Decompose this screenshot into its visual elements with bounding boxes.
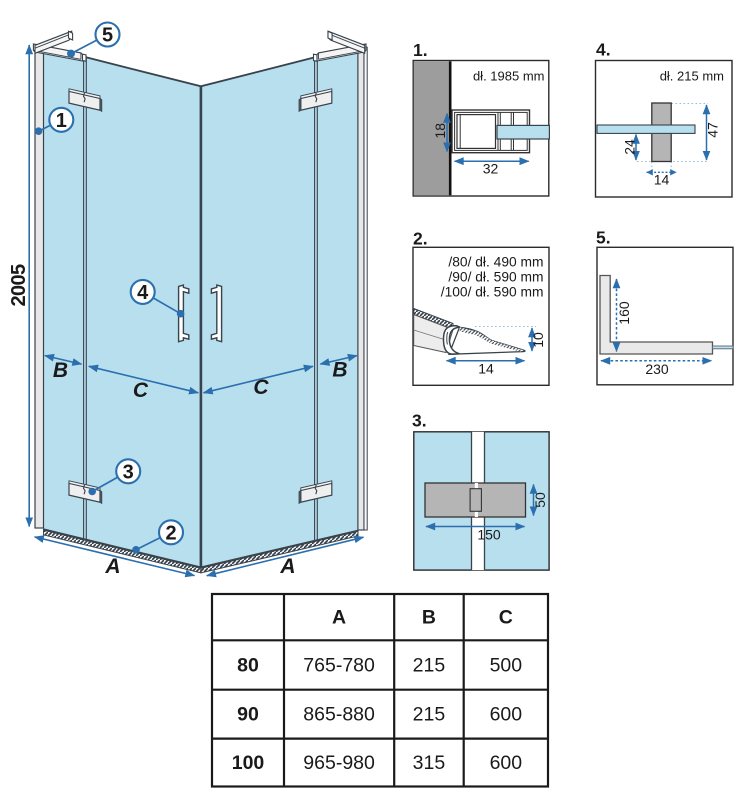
svg-text:600: 600 — [490, 704, 523, 726]
svg-text:dł. 215 mm: dł. 215 mm — [660, 69, 724, 84]
svg-text:3.: 3. — [412, 411, 427, 431]
svg-text:160: 160 — [616, 301, 632, 325]
svg-text:5.: 5. — [596, 228, 611, 248]
svg-text:80: 80 — [237, 655, 259, 677]
svg-text:/90/ dł. 590 mm: /90/ dł. 590 mm — [448, 270, 543, 285]
svg-text:B: B — [422, 607, 436, 629]
svg-text:A: A — [279, 555, 295, 578]
svg-text:100: 100 — [232, 752, 265, 774]
svg-text:B: B — [332, 359, 347, 382]
svg-text:A: A — [104, 555, 120, 578]
svg-text:32: 32 — [483, 161, 499, 177]
svg-text:215: 215 — [413, 704, 446, 726]
svg-text:4.: 4. — [596, 40, 611, 60]
svg-text:C: C — [499, 607, 513, 629]
svg-text:10: 10 — [530, 332, 546, 348]
svg-text:/100/ dł. 590 mm: /100/ dł. 590 mm — [441, 285, 544, 300]
svg-text:C: C — [253, 376, 269, 399]
svg-text:500: 500 — [490, 655, 523, 677]
svg-text:C: C — [133, 379, 149, 402]
svg-text:/80/ dł. 490 mm: /80/ dł. 490 mm — [448, 255, 543, 270]
svg-text:dł. 1985 mm: dł. 1985 mm — [473, 69, 545, 84]
svg-text:90: 90 — [237, 704, 259, 726]
svg-text:14: 14 — [654, 172, 670, 188]
svg-text:24: 24 — [621, 139, 637, 155]
svg-text:230: 230 — [645, 361, 669, 377]
svg-text:4: 4 — [137, 282, 149, 304]
svg-text:765-780: 765-780 — [303, 655, 375, 677]
svg-text:5: 5 — [102, 25, 113, 47]
svg-text:2.: 2. — [413, 229, 428, 249]
svg-text:18: 18 — [432, 123, 448, 139]
svg-text:965-980: 965-980 — [303, 752, 375, 774]
svg-text:1: 1 — [56, 110, 67, 132]
svg-text:600: 600 — [490, 752, 523, 774]
svg-text:14: 14 — [478, 361, 494, 377]
svg-text:47: 47 — [705, 122, 721, 138]
svg-text:215: 215 — [413, 655, 446, 677]
svg-text:50: 50 — [532, 492, 548, 508]
svg-text:2005: 2005 — [8, 264, 30, 307]
svg-text:865-880: 865-880 — [303, 704, 375, 726]
svg-text:B: B — [53, 359, 68, 382]
svg-text:2: 2 — [165, 523, 176, 545]
svg-text:A: A — [332, 607, 346, 629]
svg-text:150: 150 — [477, 527, 501, 543]
svg-text:315: 315 — [413, 752, 446, 774]
svg-text:1.: 1. — [413, 40, 428, 60]
svg-text:3: 3 — [123, 462, 134, 484]
